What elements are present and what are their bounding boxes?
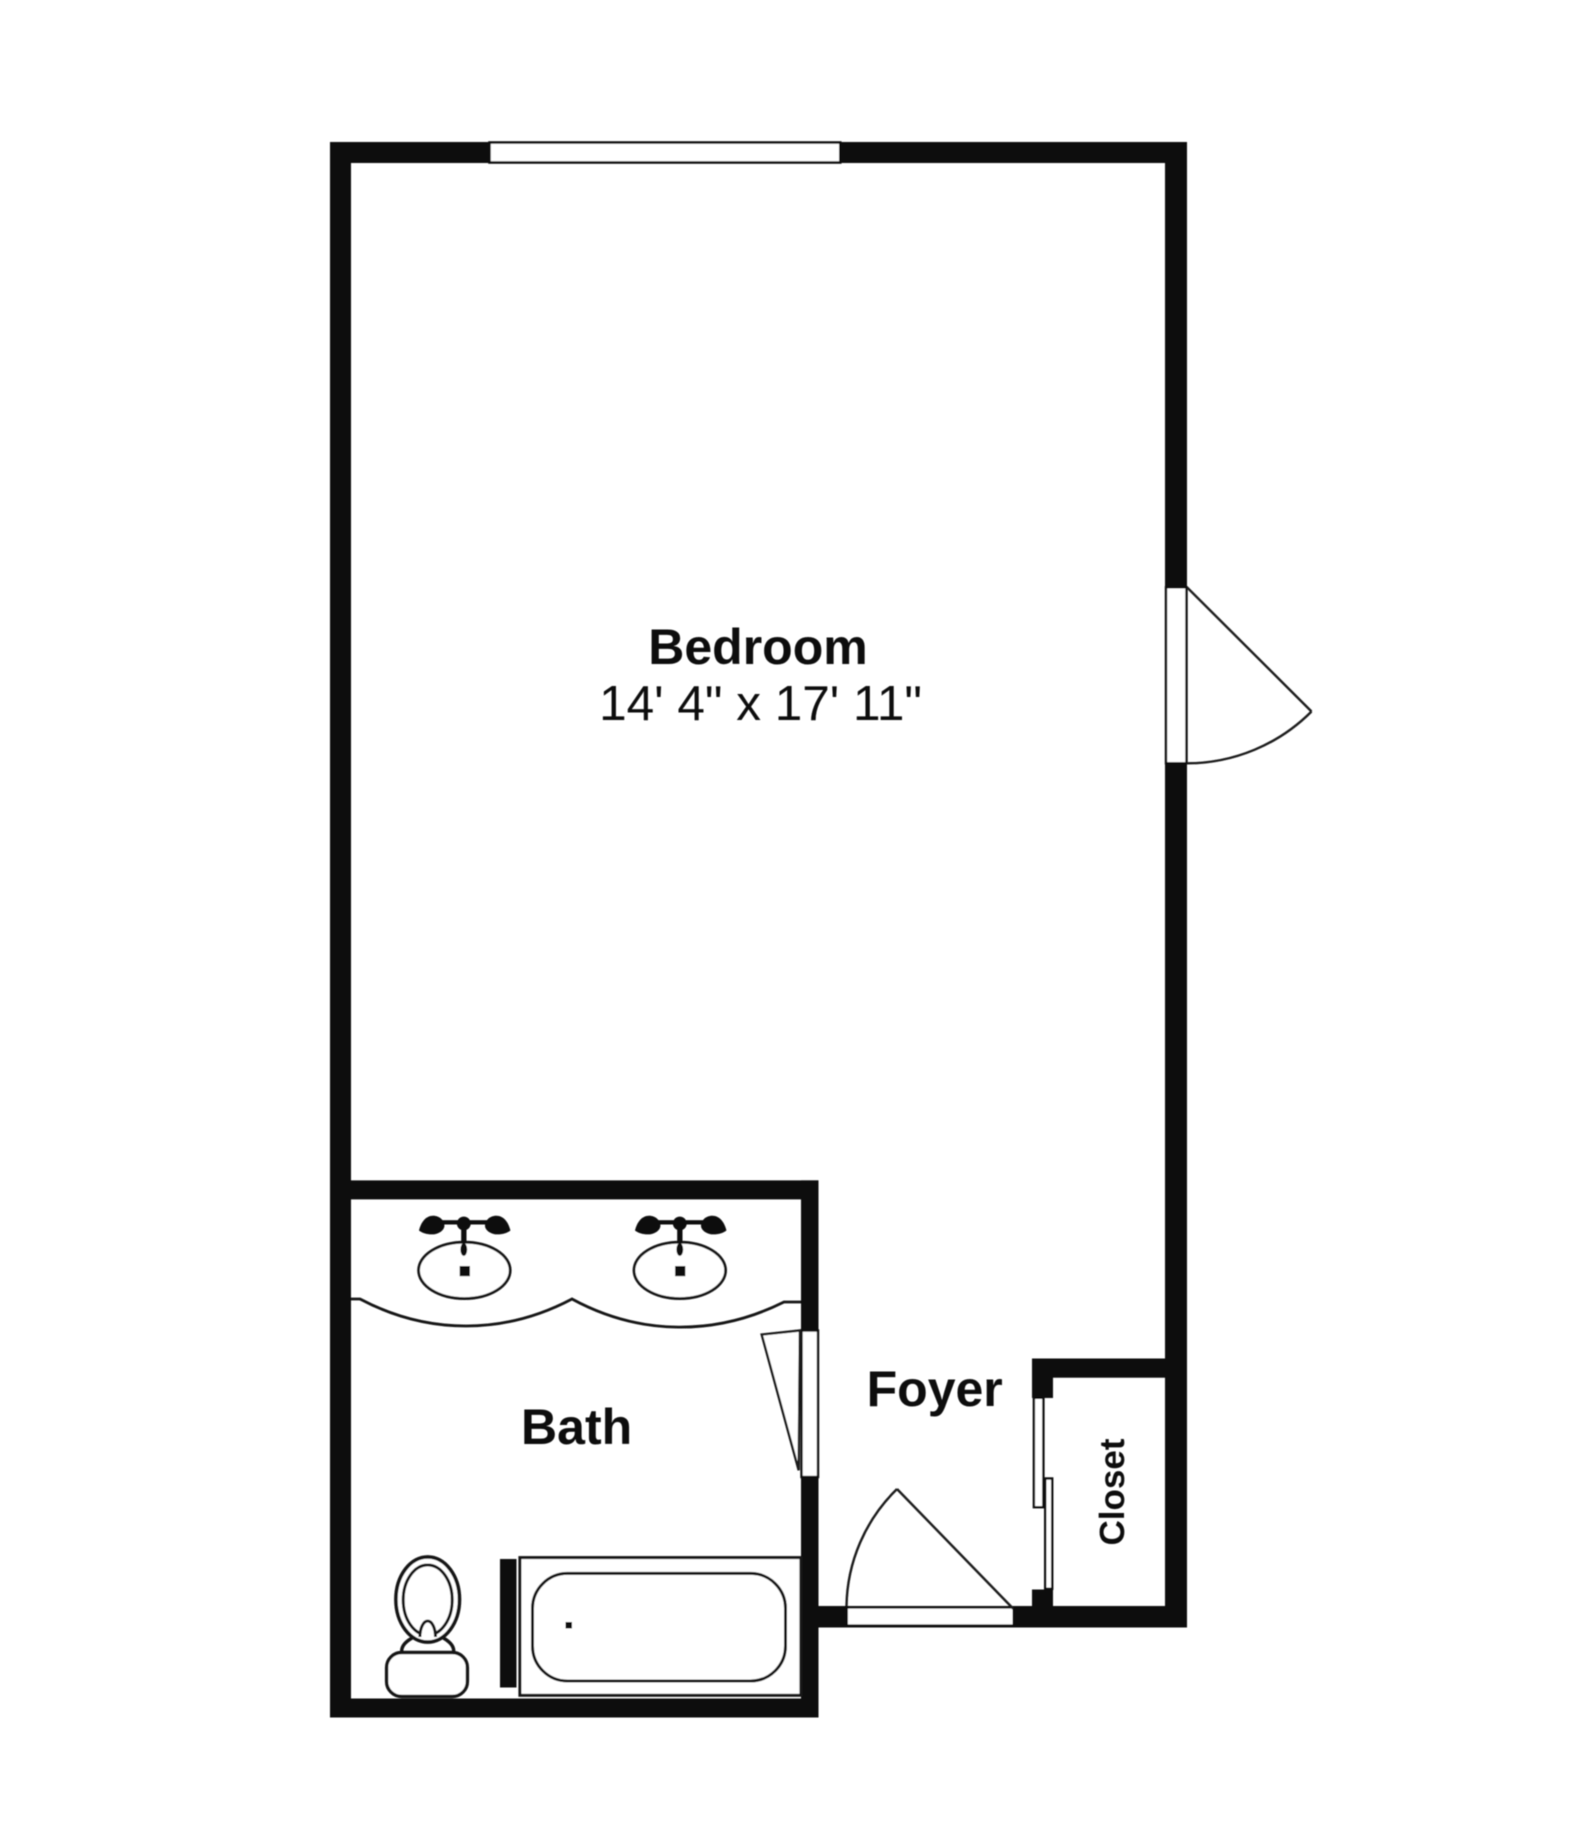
svg-text:Foyer: Foyer [867, 1361, 1003, 1417]
svg-text:Bedroom: Bedroom [648, 619, 867, 675]
svg-text:14' 4" x 17' 11": 14' 4" x 17' 11" [599, 676, 922, 731]
svg-text:Bath: Bath [521, 1399, 632, 1455]
